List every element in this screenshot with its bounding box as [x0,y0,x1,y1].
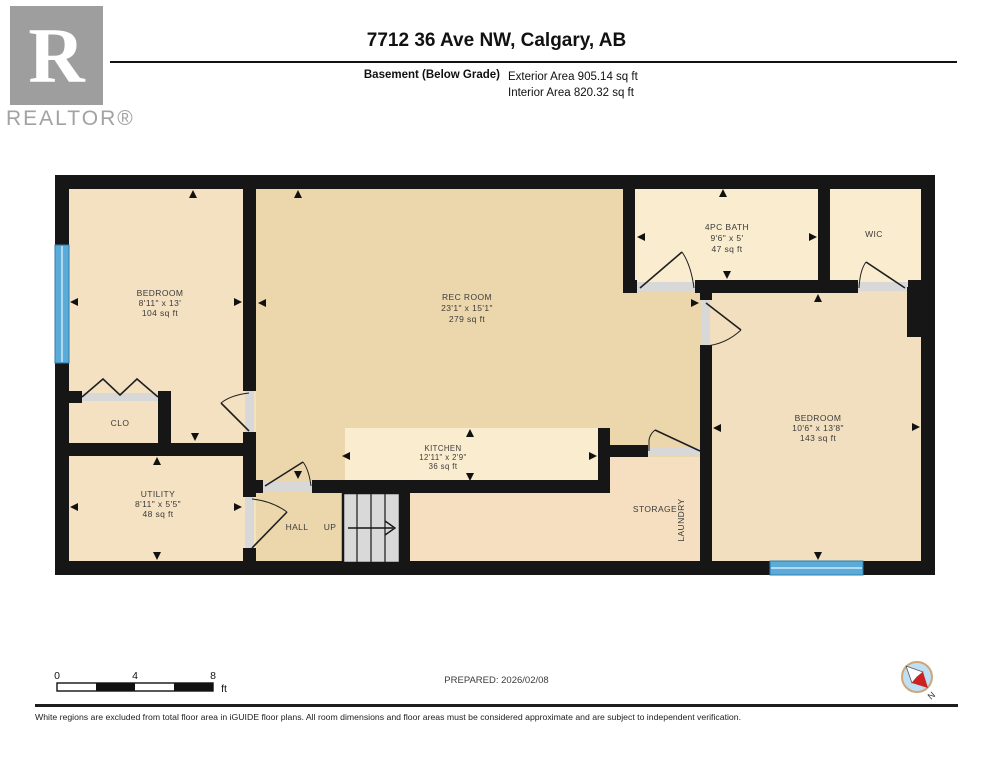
bedroom2-name: BEDROOM [795,413,842,423]
room-floors [60,180,928,567]
bedroom1-name: BEDROOM [137,288,184,298]
compass-north-label: N [926,690,938,702]
wic-name: WIC [865,229,883,239]
bedroom1-dims: 8'11" x 13' [139,298,182,308]
stairs [343,493,400,563]
floorplan: BEDROOM 8'11" x 13' 104 sq ft REC ROOM 2… [0,0,993,768]
prepared-date: PREPARED: 2026/02/08 [0,675,993,686]
storage-name: STORAGE [633,504,677,514]
bath-dims: 9'6" x 5' [710,233,743,243]
laundry-name: LAUNDRY [676,498,686,541]
bedroom2-area: 143 sq ft [800,433,836,443]
recroom-dims: 23'1" x 15'1" [441,303,493,313]
utility-area: 48 sq ft [142,509,173,519]
kitchen-area: 36 sq ft [429,462,458,471]
recroom-name: REC ROOM [442,292,492,302]
footer-divider [35,704,958,707]
bedroom2-dims: 10'6" x 13'8" [792,423,844,433]
kitchen-name: KITCHEN [424,444,461,453]
bedroom1-area: 104 sq ft [142,308,178,318]
hall-name: HALL [286,522,309,532]
kitchen-dims: 12'11" x 2'9" [419,453,466,462]
utility-dims: 8'11" x 5'5" [135,499,181,509]
bath-area: 47 sq ft [711,244,742,254]
bath-name: 4PC BATH [705,222,749,232]
recroom-area: 279 sq ft [449,314,485,324]
stairs-up-label: UP [324,522,337,532]
footer-disclaimer: White regions are excluded from total fl… [35,712,965,722]
clo-name: CLO [111,418,130,428]
utility-name: UTILITY [141,489,175,499]
